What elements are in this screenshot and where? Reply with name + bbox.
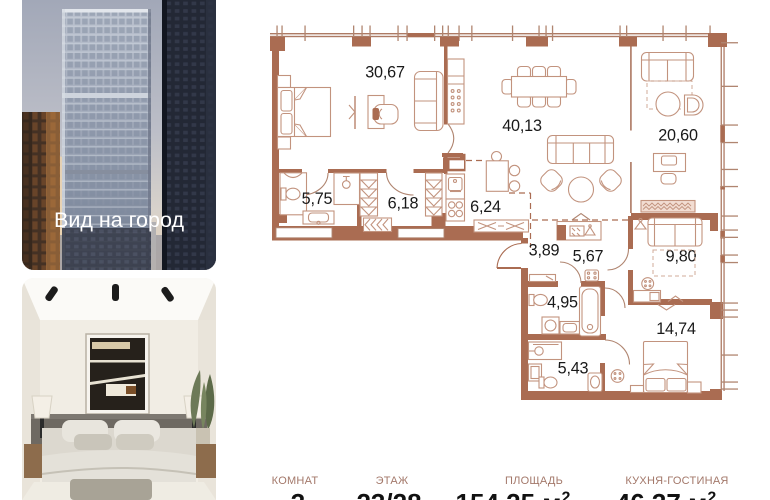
svg-text:6,24: 6,24 — [470, 198, 501, 216]
svg-text:4,95: 4,95 — [547, 294, 578, 312]
svg-text:20,60: 20,60 — [658, 127, 698, 145]
svg-text:30,67: 30,67 — [365, 64, 405, 82]
svg-text:14,74: 14,74 — [656, 320, 696, 338]
svg-text:5,67: 5,67 — [573, 248, 604, 266]
svg-text:3,89: 3,89 — [529, 242, 560, 260]
svg-text:40,13: 40,13 — [502, 117, 542, 135]
svg-text:5,43: 5,43 — [558, 360, 589, 378]
svg-text:6,18: 6,18 — [388, 195, 419, 213]
svg-text:5,75: 5,75 — [302, 190, 333, 208]
